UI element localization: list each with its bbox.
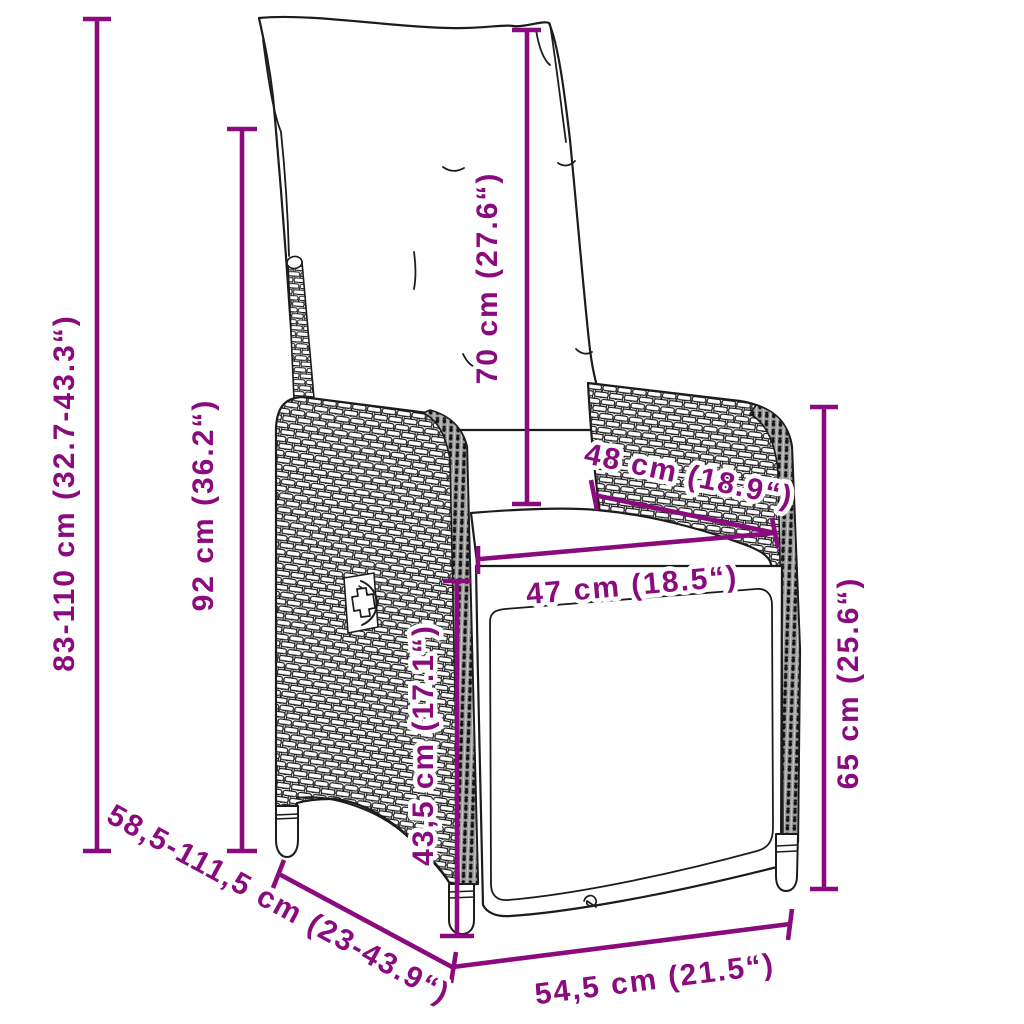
svg-text:65 cm (25.6“): 65 cm (25.6“) (832, 577, 865, 790)
svg-text:43,5 cm (17.1“): 43,5 cm (17.1“) (407, 624, 440, 866)
svg-text:92 cm (36.2“): 92 cm (36.2“) (187, 399, 220, 612)
svg-text:83-110 cm (32.7-43.3“): 83-110 cm (32.7-43.3“) (48, 314, 81, 672)
svg-text:70 cm (27.6“): 70 cm (27.6“) (471, 172, 504, 385)
